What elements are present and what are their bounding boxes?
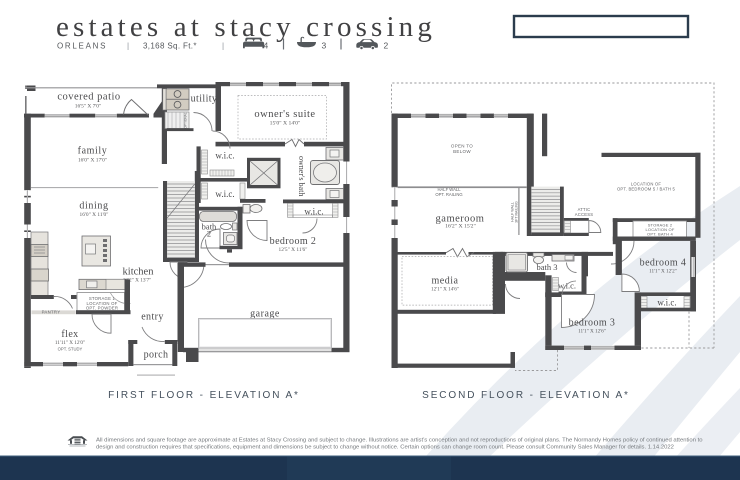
svg-text:11'1" X 12'2": 11'1" X 12'2" [649, 269, 677, 275]
svg-text:11'1" X 12'6": 11'1" X 12'6" [578, 329, 606, 335]
svg-text:design and construction requir: design and construction requires that sp… [96, 445, 674, 451]
svg-text:16'0" X 11'0": 16'0" X 11'0" [80, 212, 109, 218]
svg-text:OPT. STUDY: OPT. STUDY [58, 347, 83, 352]
svg-text:All dimensions and square foot: All dimensions and square footage are ap… [96, 438, 703, 444]
svg-text:garage: garage [250, 309, 280, 320]
svg-text:2: 2 [384, 41, 389, 51]
svg-text:OPT. POWDER: OPT. POWDER [86, 305, 118, 310]
svg-text:12'5" X 11'6": 12'5" X 11'6" [279, 247, 308, 253]
svg-text:OPT. BEDROOM 5 / BATH 5: OPT. BEDROOM 5 / BATH 5 [617, 187, 676, 192]
svg-text:2: 2 [207, 229, 211, 239]
svg-text:3,168 Sq. Ft.*: 3,168 Sq. Ft.* [143, 42, 197, 51]
svg-text:|: | [127, 42, 129, 51]
svg-text:16'5" X 7'0": 16'5" X 7'0" [75, 104, 101, 110]
svg-text:OPEN TO: OPEN TO [451, 144, 473, 149]
svg-text:w.i.c.: w.i.c. [657, 298, 676, 308]
svg-text:OPT. BATH 4: OPT. BATH 4 [647, 232, 673, 237]
svg-text:bedroom 2: bedroom 2 [270, 236, 317, 247]
svg-text:bedroom 4: bedroom 4 [640, 258, 687, 269]
svg-text:11'11" X 12'0": 11'11" X 12'0" [55, 340, 85, 346]
svg-text:3: 3 [322, 41, 327, 51]
svg-text:bedroom 3: bedroom 3 [569, 318, 616, 329]
svg-text:owner's suite: owner's suite [254, 109, 315, 120]
svg-text:16'0" X 17'0": 16'0" X 17'0" [78, 158, 107, 164]
svg-text:media: media [432, 276, 459, 287]
svg-text:BELOW: BELOW [453, 149, 471, 154]
svg-text:kitchen: kitchen [123, 267, 155, 278]
svg-text:flex: flex [61, 329, 78, 340]
svg-text:family: family [78, 146, 108, 157]
svg-text:ORLEANS: ORLEANS [57, 42, 107, 51]
svg-text:4: 4 [264, 41, 269, 51]
svg-text:|: | [222, 42, 224, 51]
svg-text:FIRST FLOOR - ELEVATION A*: FIRST FLOOR - ELEVATION A* [108, 390, 300, 401]
svg-text:15'0" X 14'0": 15'0" X 14'0" [270, 121, 301, 127]
svg-text:w.i.c.: w.i.c. [215, 189, 234, 199]
svg-text:12'1" X 14'6": 12'1" X 14'6" [431, 287, 459, 293]
svg-text:porch: porch [144, 350, 169, 361]
svg-text:OPT. RAILING: OPT. RAILING [435, 192, 462, 197]
svg-text:ACCESS: ACCESS [575, 212, 593, 217]
svg-text:w.i.c.: w.i.c. [558, 281, 576, 291]
svg-text:bath 3: bath 3 [536, 262, 557, 272]
svg-text:entry: entry [141, 312, 164, 323]
svg-text:w.i.c.: w.i.c. [304, 207, 323, 217]
svg-text:SECOND FLOOR - ELEVATION A*: SECOND FLOOR - ELEVATION A* [422, 390, 630, 401]
svg-text:3FT RAILING: 3FT RAILING [515, 201, 519, 223]
svg-text:w.i.c.: w.i.c. [215, 151, 234, 161]
svg-text:covered patio: covered patio [57, 92, 120, 103]
svg-text:dining: dining [79, 201, 108, 212]
svg-text:OPTIONAL: OPTIONAL [184, 112, 188, 128]
svg-text:utility: utility [191, 94, 218, 105]
svg-text:owner's bath: owner's bath [297, 156, 306, 196]
svg-text:16'2" X 15'2": 16'2" X 15'2" [445, 224, 476, 230]
svg-text:PANTRY: PANTRY [42, 310, 61, 315]
